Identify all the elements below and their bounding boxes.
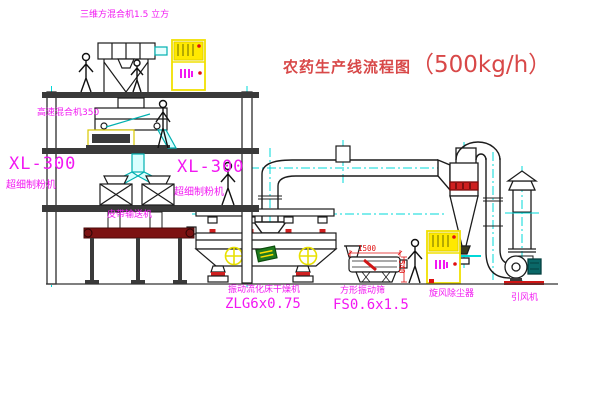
belt-conveyor [84,212,194,284]
dimension-sieve-length: 1500 [358,244,376,253]
person-1 [79,54,93,93]
label-dryer-name: 振动流化床干燥机 [228,286,300,295]
fan-motor [528,259,541,274]
label-sieve-model: FS0.6x1.5 [333,298,409,312]
dimension-sieve-height: 540 [397,260,406,274]
label-mill-center-name: 超细制粉机 [174,188,224,198]
dryer-feed-hood [254,222,286,233]
label-three-d-mixer: 三维方混合机1.5 立方 [80,11,169,20]
label-fan: 引风机 [511,294,538,303]
induced-draft-fan [504,256,544,285]
cad-flow-diagram: 农药生产线流程图（500kg/h） 三维方混合机1.5 立方 高速混合机350 … [0,0,600,403]
three-d-mixer [98,43,167,92]
label-sieve-name: 方形振动筛 [340,287,385,296]
duct-stub [336,146,350,162]
label-mill-left-name: 超细制粉机 [6,181,56,191]
exhaust-duct [254,146,450,233]
label-high-speed-mixer: 高速混合机350 [37,109,99,118]
person-5 [408,240,422,284]
person-2 [131,60,143,92]
label-dryer-model: ZLG6x0.75 [225,297,301,311]
cyclone-inlet-reducer [438,160,450,190]
label-cyclone: 旋风除尘器 [429,290,474,299]
vibrator-wheel-right [299,247,317,265]
control-cabinet-1 [172,40,205,90]
diagram-title: 农药生产线流程图（500kg/h） [283,45,551,79]
title-text: 农药生产线流程图 [283,58,411,76]
cyclone-red-band [450,182,478,190]
vibrator-wheel-left [225,247,243,265]
label-mill-left-model: XL-300 [9,156,76,173]
label-belt-conveyor: 皮带输送机 [107,211,152,220]
title-capacity: （500kg/h） [411,52,551,78]
dryer-foot-right [293,266,313,282]
control-cabinet-2 [427,231,460,283]
dryer-foot-left [208,266,228,282]
floor-slab-1 [42,92,259,98]
label-mill-center-model: XL-300 [177,159,244,176]
